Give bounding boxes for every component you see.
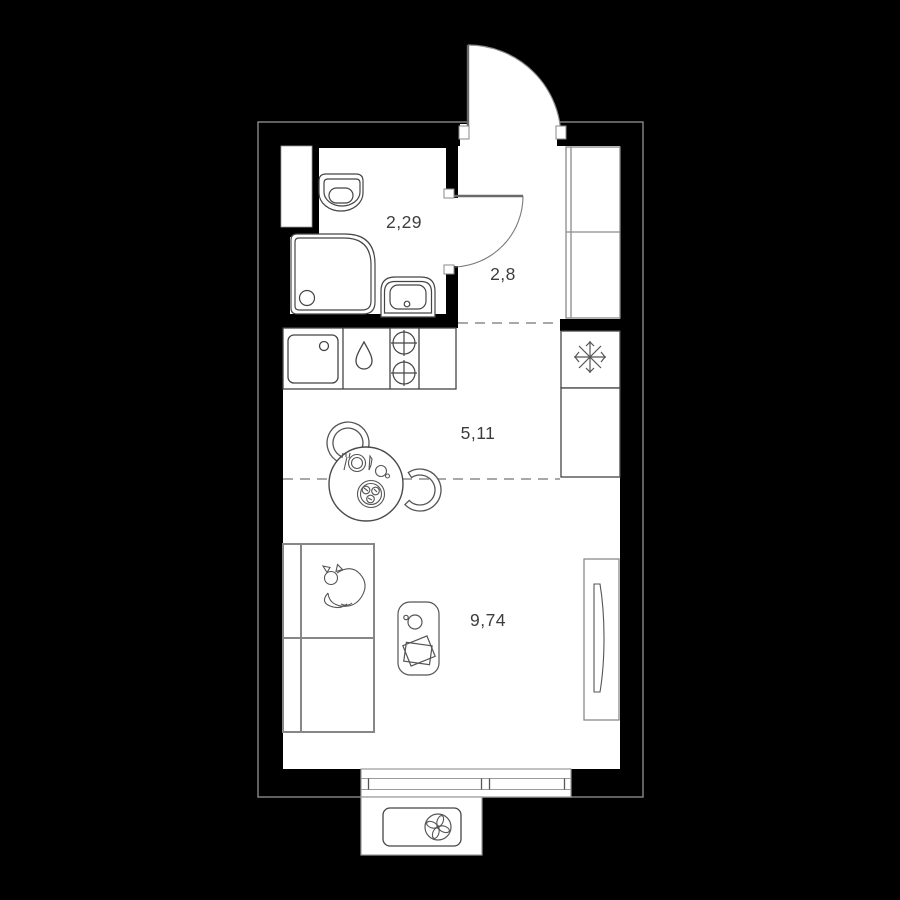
bathroom-door-opening [446,198,458,266]
area-label-hallway: 2,8 [490,264,516,284]
floor-plan: 2,29 2,8 5,11 9,74 [0,0,900,900]
floor-plan-screenshot: 2,29 2,8 5,11 9,74 [0,0,900,900]
ac-unit [383,808,461,846]
shower [291,234,375,314]
tall-cabinet [561,388,620,477]
wardrobe [566,147,620,318]
area-label-bathroom: 2,29 [386,212,422,232]
area-label-living: 9,74 [470,610,506,630]
balcony [361,797,482,855]
door-jamb [444,189,454,198]
door-jamb [459,126,469,139]
ventilation-shaft [281,146,319,237]
sofa-bed [283,544,374,732]
window [361,769,571,797]
dining-table [329,447,403,521]
washbasin [381,277,435,317]
wall-segment [560,319,620,331]
fridge [561,331,620,477]
tv-stand [584,559,619,720]
kitchen-counter [283,328,456,389]
door-jamb [444,265,454,274]
toilet [319,174,363,211]
tv [594,584,604,692]
door-jamb [556,126,566,139]
side-table [398,602,439,675]
area-label-kitchen: 5,11 [461,423,496,443]
